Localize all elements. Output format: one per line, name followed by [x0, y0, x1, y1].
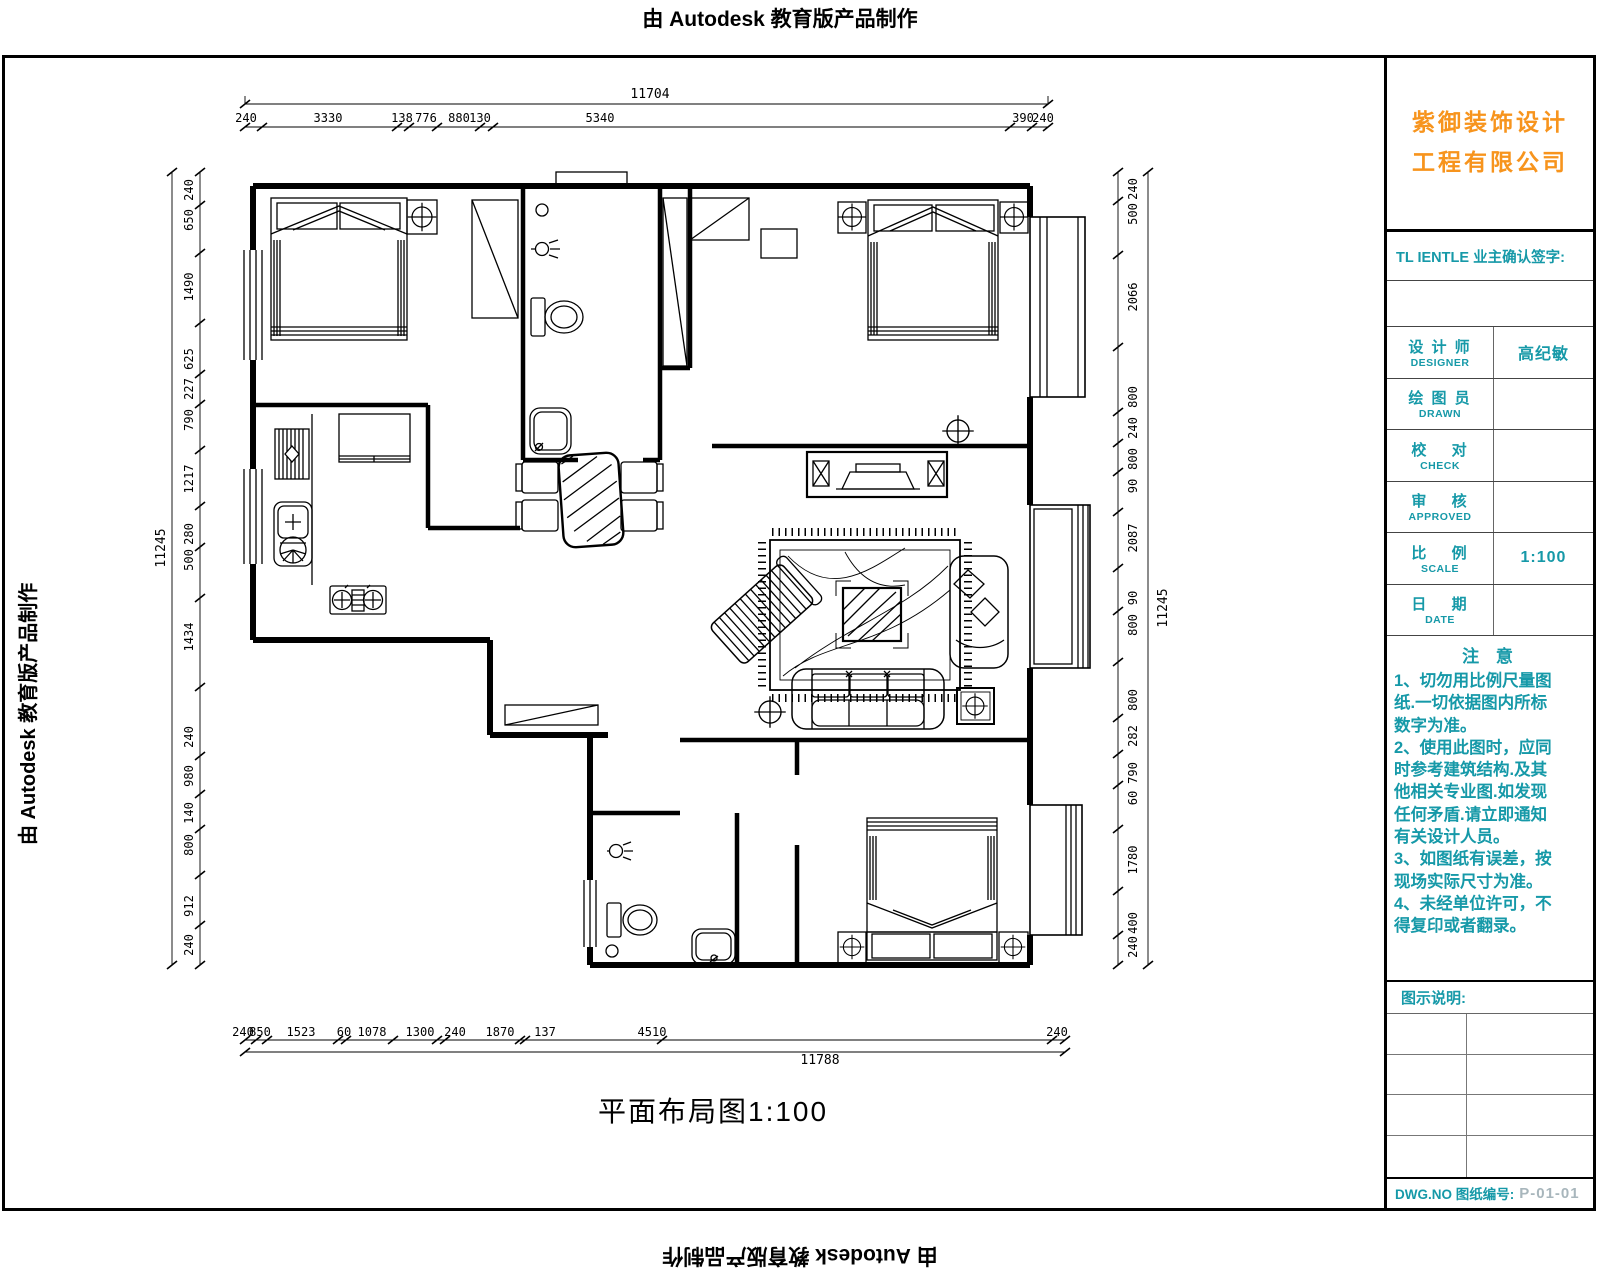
drawn-label-en: DRAWN — [1419, 408, 1461, 420]
title-block: 紫御装饰设计 工程有限公司 TL IENTLE 业主确认签字: 设 计 师 DE… — [1384, 55, 1596, 1211]
row-approved: 审 核 APPROVED — [1387, 482, 1593, 534]
svg-text:400: 400 — [1126, 912, 1140, 934]
drawing-sheet: 由 Autodesk 教育版产品制作 由 Autodesk 教育版产品制作 由 … — [0, 0, 1600, 1280]
approved-value — [1494, 482, 1593, 533]
svg-text:130: 130 — [469, 111, 491, 125]
date-label-en: DATE — [1425, 614, 1455, 626]
approved-label-cn: 审 核 — [1411, 490, 1468, 511]
company-line1: 紫御装饰设计 — [1387, 102, 1593, 142]
bed-3 — [838, 818, 1028, 963]
sofa — [792, 669, 944, 729]
approved-label-en: APPROVED — [1409, 511, 1472, 523]
svg-text:4510: 4510 — [638, 1025, 667, 1039]
legend-label: 图示说明: — [1387, 982, 1593, 1014]
closet-sliding-door — [663, 198, 687, 366]
floor-lamp-icon — [754, 696, 786, 728]
svg-text:240: 240 — [1046, 1025, 1068, 1039]
floor-plan-drawing: 11704 240 3330 138 776 880 130 5340 390 … — [0, 0, 1600, 1280]
desk-and-stool — [690, 198, 797, 258]
svg-text:137: 137 — [534, 1025, 556, 1039]
tv — [842, 472, 914, 489]
client-signature-label: TL IENTLE 业主确认签字: — [1387, 232, 1593, 281]
svg-text:240: 240 — [1126, 417, 1140, 439]
dwg-no-value: P-01-01 — [1519, 1185, 1579, 1202]
legend-grid — [1387, 1014, 1593, 1177]
exterior-walls — [253, 186, 1030, 965]
svg-text:240: 240 — [1032, 111, 1054, 125]
svg-text:1434: 1434 — [182, 623, 196, 652]
svg-text:1870: 1870 — [486, 1025, 515, 1039]
svg-text:2066: 2066 — [1126, 283, 1140, 312]
svg-text:2087: 2087 — [1126, 524, 1140, 553]
svg-text:850: 850 — [249, 1025, 271, 1039]
nightstand-lamp-icon — [408, 203, 437, 232]
check-value — [1494, 430, 1593, 481]
svg-text:390: 390 — [1012, 111, 1034, 125]
living-room-furniture — [706, 452, 1008, 729]
row-scale: 比 例 SCALE 1:100 — [1387, 533, 1593, 585]
dining-set — [516, 452, 663, 548]
nightstand-lamp-icon — [1001, 935, 1026, 960]
svg-text:240: 240 — [182, 179, 196, 201]
svg-text:282: 282 — [1126, 725, 1140, 747]
svg-text:800: 800 — [182, 834, 196, 856]
svg-text:240: 240 — [1126, 178, 1140, 200]
plan-title: 平面布局图1:100 — [598, 1090, 828, 1130]
armchair — [950, 556, 1008, 668]
windows — [244, 172, 1090, 947]
bed-2 — [838, 200, 1028, 340]
svg-text:790: 790 — [1126, 762, 1140, 784]
row-check: 校 对 CHECK — [1387, 430, 1593, 482]
rug — [770, 540, 960, 690]
svg-text:280: 280 — [182, 523, 196, 545]
dwg-no-label: DWG.NO 图纸编号: — [1395, 1183, 1514, 1203]
cabinet — [339, 414, 410, 462]
svg-text:800: 800 — [1126, 448, 1140, 470]
svg-text:240: 240 — [235, 111, 257, 125]
toilet-tank — [531, 298, 545, 336]
svg-text:240: 240 — [182, 726, 196, 748]
check-label-en: CHECK — [1420, 460, 1460, 472]
svg-text:11788: 11788 — [800, 1053, 839, 1068]
interior-walls — [253, 186, 1030, 965]
scale-value: 1:100 — [1494, 533, 1593, 584]
svg-text:650: 650 — [182, 209, 196, 231]
svg-text:60: 60 — [337, 1025, 351, 1039]
svg-text:1217: 1217 — [182, 465, 196, 494]
svg-text:1300: 1300 — [406, 1025, 435, 1039]
svg-text:90: 90 — [1126, 479, 1140, 493]
toilet-tank — [607, 903, 621, 937]
ceiling-light-icon — [536, 204, 548, 216]
svg-text:880: 880 — [448, 111, 470, 125]
company-name: 紫御装饰设计 工程有限公司 — [1387, 58, 1593, 232]
kitchen-fixtures — [274, 414, 410, 614]
svg-text:60: 60 — [1126, 791, 1140, 805]
scale-label-en: SCALE — [1421, 563, 1459, 575]
notes-section: 注 意 1、切勿用比例尺量图 纸.一切依据图内所标 数字为准。 2、使用此图时，… — [1387, 636, 1593, 982]
svg-text:800: 800 — [1126, 386, 1140, 408]
bathroom-1-fixtures — [530, 204, 583, 454]
svg-text:140: 140 — [182, 802, 196, 824]
nightstand-lamp-icon — [839, 204, 866, 231]
bathroom-2-fixtures — [606, 842, 735, 964]
svg-text:912: 912 — [182, 895, 196, 917]
company-line2: 工程有限公司 — [1387, 142, 1593, 182]
svg-text:1523: 1523 — [287, 1025, 316, 1039]
shower-head-icon — [536, 243, 549, 256]
notes-title: 注 意 — [1394, 642, 1587, 667]
entry-shoe-cabinet — [505, 705, 598, 725]
nightstand-lamp-icon — [1001, 204, 1028, 231]
svg-text:625: 625 — [182, 348, 196, 370]
svg-text:227: 227 — [182, 378, 196, 400]
row-date: 日 期 DATE — [1387, 585, 1593, 637]
designer-label-en: DESIGNER — [1411, 357, 1470, 369]
drawn-value — [1494, 379, 1593, 430]
designer-value: 高纪敏 — [1494, 327, 1593, 378]
svg-text:800: 800 — [1126, 614, 1140, 636]
tv-cabinet — [807, 452, 947, 497]
floor-drain-icon — [606, 945, 618, 957]
svg-text:980: 980 — [182, 765, 196, 787]
svg-text:90: 90 — [1126, 591, 1140, 605]
shower-head-icon — [610, 845, 623, 858]
designer-label-cn: 设 计 师 — [1408, 336, 1471, 357]
svg-text:11245: 11245 — [154, 528, 169, 567]
check-label-cn: 校 对 — [1411, 439, 1468, 460]
pendant-light-icon — [942, 415, 974, 447]
svg-text:800: 800 — [1126, 689, 1140, 711]
lounge-chair — [706, 554, 823, 668]
svg-text:1078: 1078 — [358, 1025, 387, 1039]
row-drawn: 绘 图 员 DRAWN — [1387, 379, 1593, 431]
svg-text:240: 240 — [444, 1025, 466, 1039]
row-designer: 设 计 师 DESIGNER 高纪敏 — [1387, 327, 1593, 379]
coffee-table — [836, 581, 908, 648]
scale-label-cn: 比 例 — [1411, 542, 1468, 563]
svg-text:3330: 3330 — [314, 111, 343, 125]
svg-text:11704: 11704 — [630, 87, 669, 102]
wardrobe-sliding-door — [472, 200, 518, 318]
svg-text:1490: 1490 — [182, 273, 196, 302]
svg-text:790: 790 — [182, 409, 196, 431]
side-table-lamp-icon — [962, 693, 988, 719]
notes-body: 1、切勿用比例尺量图 纸.一切依据图内所标 数字为准。 2、使用此图时，应同 时… — [1394, 670, 1587, 938]
svg-text:11245: 11245 — [1156, 588, 1171, 627]
svg-text:776: 776 — [415, 111, 437, 125]
svg-text:5340: 5340 — [586, 111, 615, 125]
svg-text:138: 138 — [391, 111, 413, 125]
date-label-cn: 日 期 — [1411, 593, 1468, 614]
date-value — [1494, 585, 1593, 636]
svg-text:1780: 1780 — [1126, 846, 1140, 875]
nightstand-lamp-icon — [840, 935, 865, 960]
client-signature-field — [1387, 281, 1593, 327]
svg-text:240: 240 — [1126, 936, 1140, 958]
svg-text:500: 500 — [182, 549, 196, 571]
drawn-label-cn: 绘 图 员 — [1408, 387, 1471, 408]
svg-text:500: 500 — [1126, 203, 1140, 225]
drawing-number-row: DWG.NO 图纸编号: P-01-01 — [1387, 1177, 1593, 1207]
svg-text:240: 240 — [182, 934, 196, 956]
